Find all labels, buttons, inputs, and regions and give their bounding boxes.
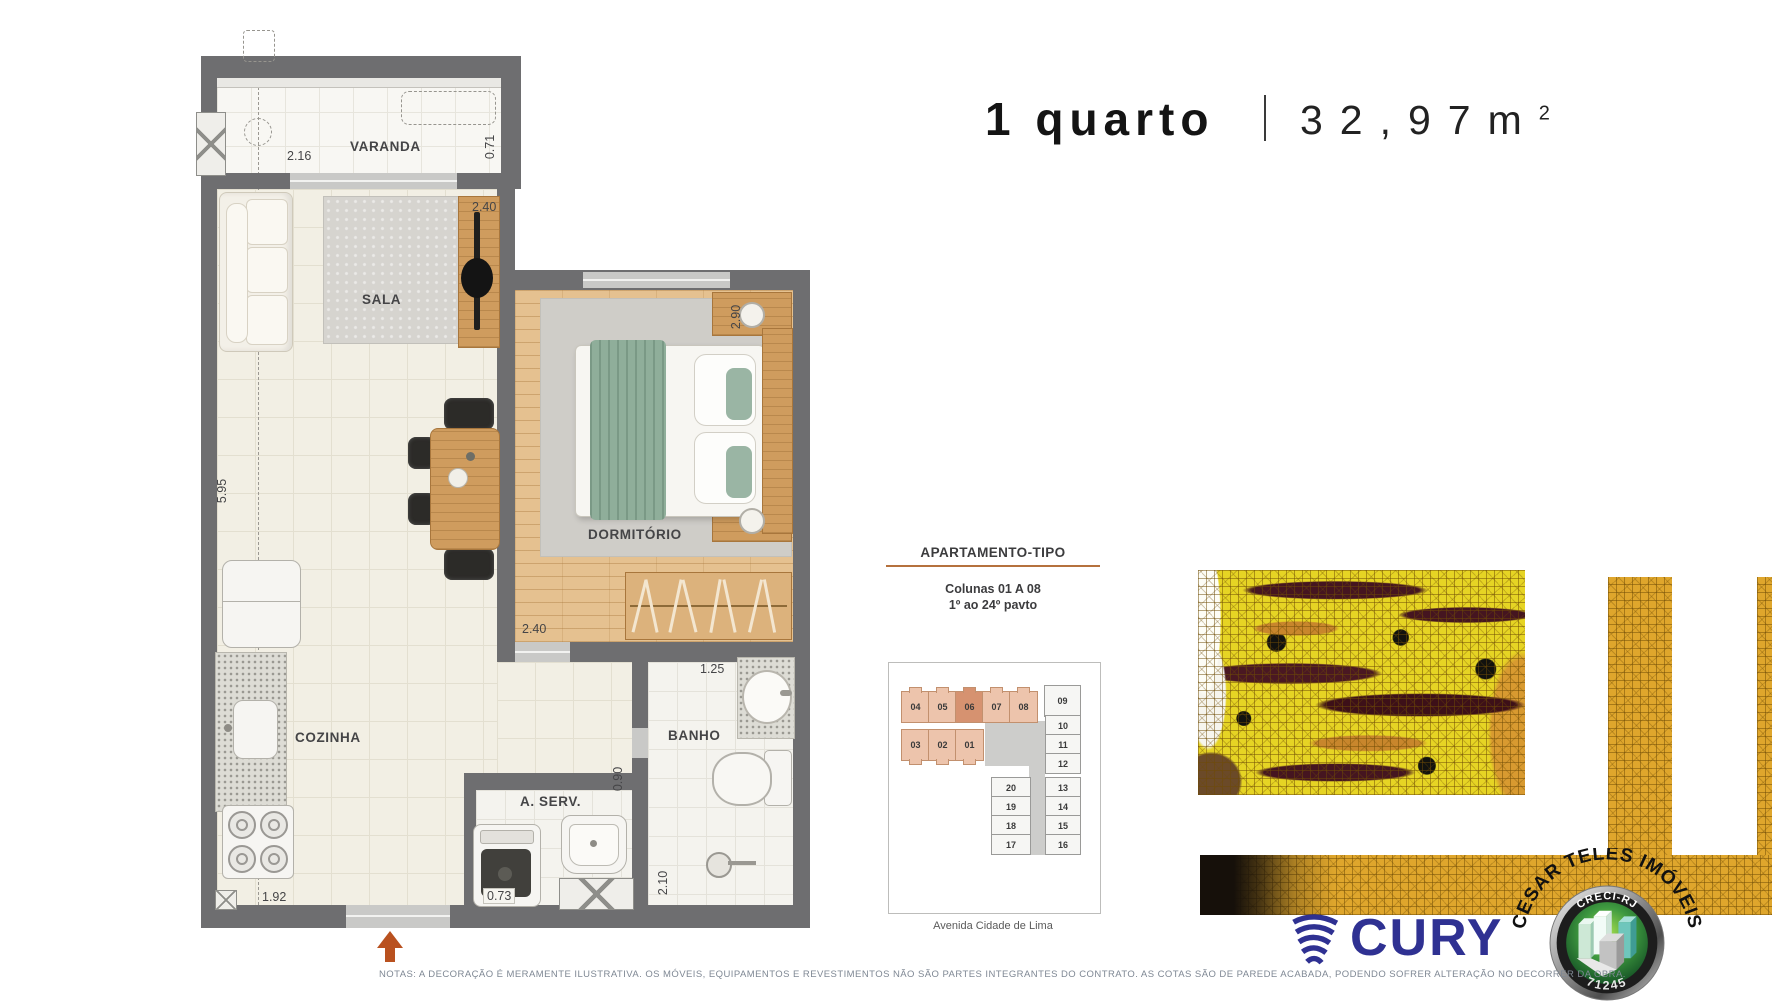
pillow-accent bbox=[726, 446, 752, 498]
unit-08: 08 bbox=[1009, 691, 1038, 723]
varanda-window bbox=[196, 112, 226, 176]
cury-waves-icon bbox=[1290, 914, 1344, 970]
mosaic-strip bbox=[1757, 577, 1772, 857]
dashed-circle bbox=[244, 118, 272, 146]
title-area: 32,97m2 bbox=[1300, 97, 1550, 144]
dim-banho-width: 1.25 bbox=[700, 662, 724, 676]
aserv-label: A. SERV. bbox=[520, 794, 581, 809]
keyplan-core bbox=[1029, 763, 1045, 855]
keyplan-core bbox=[985, 721, 1047, 766]
mosaic-band bbox=[1200, 855, 1772, 915]
sala-label: SALA bbox=[362, 292, 401, 307]
headboard bbox=[762, 328, 793, 534]
fridge bbox=[222, 560, 301, 648]
ac-condenser-dashed bbox=[243, 30, 275, 62]
banho-label: BANHO bbox=[668, 728, 721, 743]
sofa bbox=[219, 192, 293, 352]
dormitorio-window bbox=[583, 272, 730, 288]
lamp bbox=[739, 508, 765, 534]
dim-cozinha-depth: 5.95 bbox=[215, 479, 229, 503]
title-bedrooms: 1 quarto bbox=[985, 92, 1214, 146]
shower-head bbox=[706, 852, 732, 878]
entry-arrow-icon bbox=[377, 931, 403, 948]
unit-16: 16 bbox=[1045, 834, 1081, 855]
unit-01: 01 bbox=[955, 729, 984, 761]
laundry-tank bbox=[561, 815, 627, 874]
unit-09: 09 bbox=[1044, 685, 1081, 717]
dim-aserv-depth: 0.90 bbox=[611, 767, 625, 791]
cozinha-label: COZINHA bbox=[295, 730, 361, 745]
dining-chair bbox=[444, 398, 494, 430]
stove bbox=[222, 805, 294, 879]
dining-table bbox=[430, 428, 500, 550]
brochure-page: VARANDA SALA DORMITÓRIO COZINHA A. SERV.… bbox=[0, 0, 1772, 1006]
unit-18: 18 bbox=[991, 815, 1031, 836]
shaft-box-small bbox=[215, 890, 237, 910]
dim-banho-depth: 2.10 bbox=[656, 871, 670, 895]
unit-12: 12 bbox=[1045, 753, 1081, 774]
unit-10: 10 bbox=[1045, 715, 1081, 736]
unit-13: 13 bbox=[1045, 777, 1081, 798]
dining-chair bbox=[444, 548, 494, 580]
bath-sink bbox=[742, 670, 792, 724]
dim-varanda-width: 2.16 bbox=[287, 149, 311, 163]
unit-06: 06 bbox=[955, 691, 984, 723]
dormitorio-label: DORMITÓRIO bbox=[588, 527, 682, 542]
apt-heading: APARTAMENTO-TIPO bbox=[863, 545, 1123, 560]
unit-04: 04 bbox=[901, 691, 930, 723]
mosaic-strip bbox=[1608, 577, 1672, 857]
banho-door bbox=[632, 728, 648, 758]
varanda-sliding-door bbox=[290, 173, 457, 189]
toilet-bowl bbox=[712, 752, 772, 806]
shower-arm bbox=[728, 861, 756, 865]
floorplan: VARANDA SALA DORMITÓRIO COZINHA A. SERV.… bbox=[0, 0, 830, 1006]
cury-wordmark: CURY bbox=[1350, 908, 1503, 968]
unit-15: 15 bbox=[1045, 815, 1081, 836]
wall bbox=[793, 270, 810, 928]
wardrobe bbox=[625, 572, 792, 640]
tv-mount bbox=[461, 258, 493, 298]
table-vase bbox=[466, 452, 475, 461]
dormitorio-door bbox=[515, 642, 570, 662]
wall bbox=[501, 56, 521, 189]
pillow-accent bbox=[726, 368, 752, 420]
unit-20: 20 bbox=[991, 777, 1031, 798]
entry-door bbox=[346, 905, 450, 928]
unit-17: 17 bbox=[991, 834, 1031, 855]
mosaic-artwork bbox=[1198, 570, 1525, 795]
dim-varanda-depth: 0.71 bbox=[483, 135, 497, 159]
dim-dormitorio-width: 2.40 bbox=[522, 622, 546, 636]
varanda-glass bbox=[217, 78, 501, 88]
bath-faucet bbox=[780, 690, 792, 696]
sala-rug bbox=[323, 196, 459, 344]
apt-line2: 1º ao 24º pavto bbox=[863, 598, 1123, 612]
dim-sala-width: 2.40 bbox=[472, 200, 496, 214]
entry-arrow-stem bbox=[385, 948, 395, 962]
shaft-box bbox=[559, 878, 634, 910]
hall-floor bbox=[497, 662, 632, 773]
unit-14: 14 bbox=[1045, 796, 1081, 817]
notes-text: NOTAS: A DECORAÇÃO É MERAMENTE ILUSTRATI… bbox=[379, 969, 1626, 980]
apt-line1: Colunas 01 A 08 bbox=[863, 582, 1123, 596]
wall bbox=[457, 173, 521, 189]
title-separator-icon bbox=[1264, 95, 1266, 141]
kitchen-sink bbox=[233, 700, 278, 759]
unit-07: 07 bbox=[982, 691, 1011, 723]
kitchen-faucet bbox=[224, 724, 232, 732]
varanda-label: VARANDA bbox=[350, 139, 421, 154]
varanda-furniture-dashed bbox=[401, 91, 496, 125]
unit-11: 11 bbox=[1045, 734, 1081, 755]
unit-02: 02 bbox=[928, 729, 957, 761]
unit-19: 19 bbox=[991, 796, 1031, 817]
unit-03: 03 bbox=[901, 729, 930, 761]
street-label: Avenida Cidade de Lima bbox=[863, 920, 1123, 932]
dim-cozinha-width: 1.92 bbox=[262, 890, 286, 904]
dim-dormitorio-depth: 2.90 bbox=[729, 305, 743, 329]
table-plate bbox=[448, 468, 468, 488]
wall bbox=[201, 905, 810, 928]
unit-05: 05 bbox=[928, 691, 957, 723]
bed-blanket bbox=[590, 340, 666, 520]
dim-aserv-width: 0.73 bbox=[483, 888, 515, 904]
keyplan: 04 05 06 07 08 09 03 02 01 10 11 12 13 1… bbox=[888, 662, 1101, 914]
apt-underline bbox=[886, 565, 1100, 567]
